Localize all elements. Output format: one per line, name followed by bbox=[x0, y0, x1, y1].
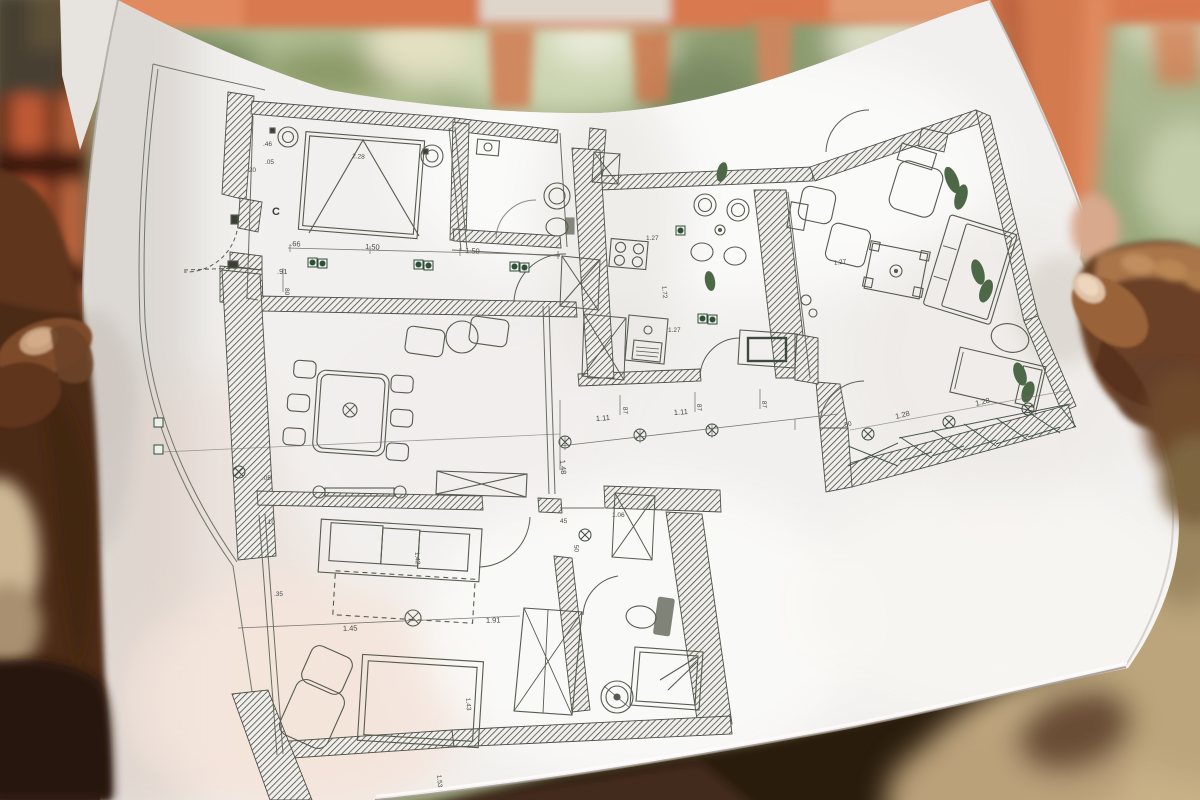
svg-text:.35: .35 bbox=[274, 591, 283, 598]
svg-text:87: 87 bbox=[695, 404, 703, 412]
svg-text:.66: .66 bbox=[290, 239, 301, 249]
svg-text:50: 50 bbox=[572, 545, 580, 553]
svg-text:1.72: 1.72 bbox=[660, 286, 668, 300]
svg-text:1.27: 1.27 bbox=[668, 327, 681, 334]
svg-text:1.11: 1.11 bbox=[596, 413, 611, 423]
svg-text:.20: .20 bbox=[247, 167, 256, 174]
svg-text:1.11: 1.11 bbox=[674, 407, 689, 417]
svg-text:.46: .46 bbox=[263, 141, 272, 148]
svg-text:87: 87 bbox=[621, 407, 629, 415]
svg-text:1.06: 1.06 bbox=[612, 512, 625, 519]
svg-text:1.42: 1.42 bbox=[413, 552, 421, 565]
svg-text:1.27: 1.27 bbox=[646, 235, 659, 242]
svg-text:.10: .10 bbox=[266, 519, 275, 526]
svg-text:1.43: 1.43 bbox=[464, 698, 472, 711]
svg-text:45: 45 bbox=[560, 518, 568, 525]
svg-text:2.28: 2.28 bbox=[352, 153, 365, 161]
svg-text:1.50: 1.50 bbox=[465, 246, 480, 256]
svg-text:1.91: 1.91 bbox=[486, 615, 501, 625]
svg-text:80: 80 bbox=[283, 288, 290, 296]
svg-text:.91: .91 bbox=[277, 267, 287, 276]
svg-text:1.50: 1.50 bbox=[365, 242, 380, 252]
svg-text:.05: .05 bbox=[265, 159, 274, 166]
svg-text:.05: .05 bbox=[262, 475, 271, 482]
svg-text:1.53: 1.53 bbox=[435, 775, 443, 789]
svg-text:87: 87 bbox=[760, 401, 768, 409]
svg-text:1.45: 1.45 bbox=[343, 623, 358, 633]
svg-text:C: C bbox=[272, 206, 280, 218]
svg-text:1.48: 1.48 bbox=[558, 459, 568, 474]
